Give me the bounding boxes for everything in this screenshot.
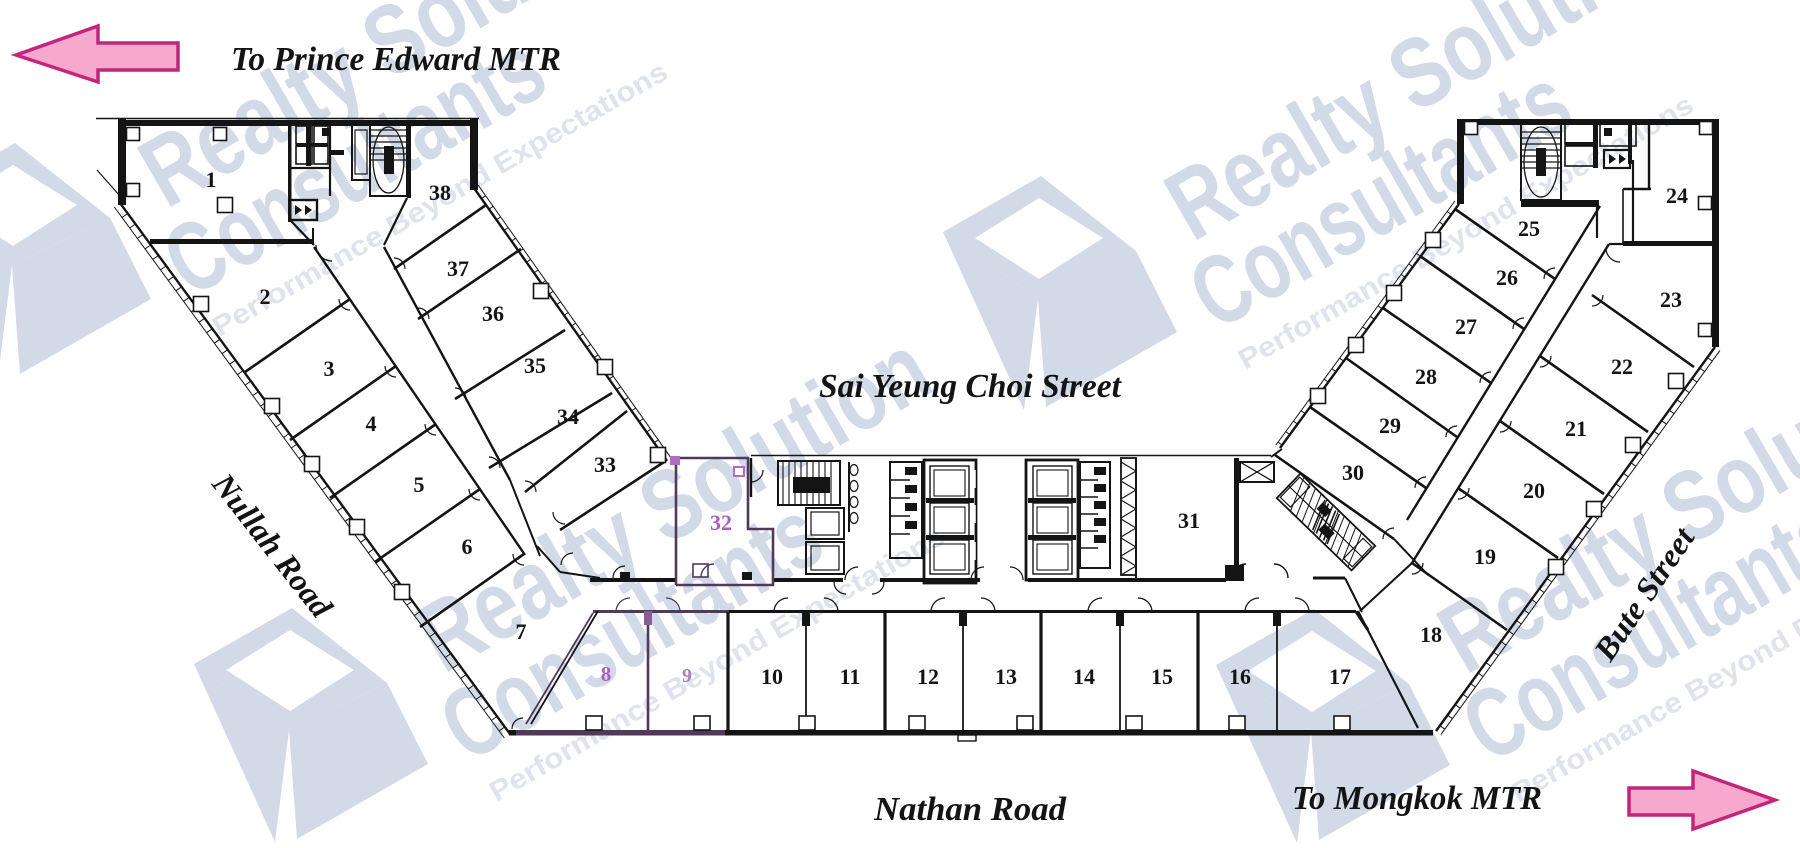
- svg-text:18: 18: [1420, 622, 1442, 647]
- svg-text:10: 10: [761, 664, 783, 689]
- svg-text:16: 16: [1229, 664, 1251, 689]
- svg-text:35: 35: [524, 353, 546, 378]
- svg-text:13: 13: [995, 664, 1017, 689]
- svg-text:37: 37: [447, 256, 469, 281]
- svg-text:1: 1: [206, 167, 217, 192]
- svg-text:5: 5: [414, 472, 425, 497]
- svg-text:22: 22: [1611, 354, 1633, 379]
- svg-text:14: 14: [1073, 664, 1095, 689]
- svg-text:8: 8: [601, 662, 612, 686]
- svg-text:24: 24: [1666, 183, 1688, 208]
- svg-text:11: 11: [840, 664, 861, 689]
- svg-text:26: 26: [1496, 265, 1518, 290]
- svg-text:12: 12: [917, 664, 939, 689]
- svg-text:3: 3: [324, 356, 335, 381]
- svg-text:To Mongkok MTR: To Mongkok MTR: [1292, 780, 1542, 817]
- svg-text:38: 38: [429, 180, 451, 205]
- svg-text:4: 4: [366, 411, 377, 436]
- svg-text:9: 9: [682, 665, 692, 687]
- svg-text:17: 17: [1329, 664, 1351, 689]
- svg-text:21: 21: [1565, 416, 1587, 441]
- svg-text:33: 33: [594, 452, 616, 477]
- svg-text:Sai Yeung Choi Street: Sai Yeung Choi Street: [819, 368, 1123, 405]
- svg-text:31: 31: [1178, 508, 1200, 533]
- svg-text:29: 29: [1379, 413, 1401, 438]
- svg-text:6: 6: [462, 534, 473, 559]
- svg-text:20: 20: [1523, 478, 1545, 503]
- svg-text:19: 19: [1474, 544, 1496, 569]
- svg-text:30: 30: [1342, 460, 1364, 485]
- svg-text:2: 2: [260, 284, 271, 309]
- svg-text:32: 32: [710, 510, 732, 535]
- svg-text:15: 15: [1151, 664, 1173, 689]
- svg-text:34: 34: [557, 404, 579, 429]
- svg-text:To Prince Edward MTR: To Prince Edward MTR: [231, 41, 561, 78]
- svg-text:28: 28: [1415, 364, 1437, 389]
- svg-text:27: 27: [1455, 314, 1477, 339]
- svg-text:Nathan Road: Nathan Road: [873, 791, 1067, 828]
- svg-text:23: 23: [1660, 287, 1682, 312]
- svg-text:25: 25: [1518, 216, 1540, 241]
- svg-text:7: 7: [516, 619, 527, 644]
- svg-text:36: 36: [482, 301, 504, 326]
